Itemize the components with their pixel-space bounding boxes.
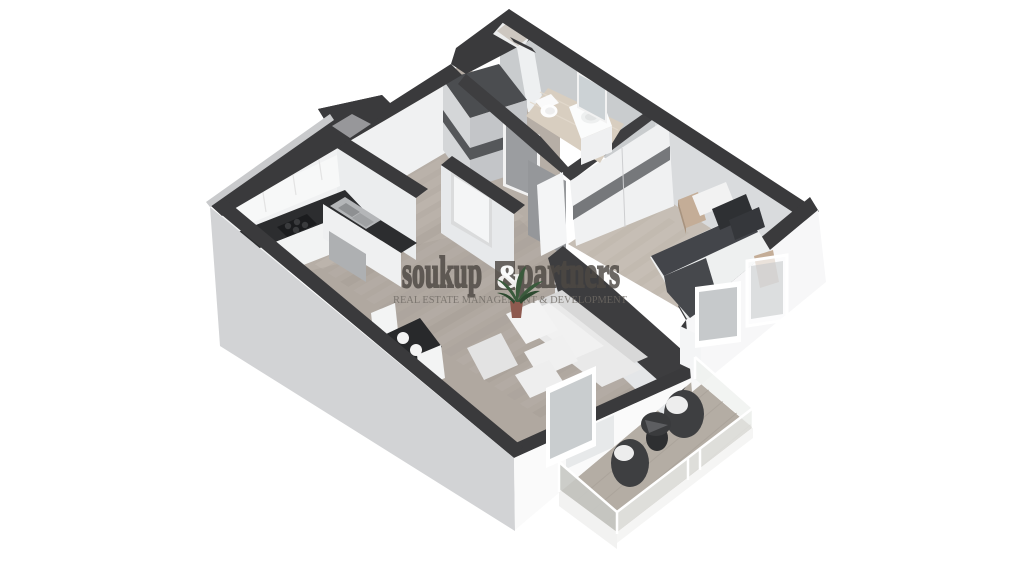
svg-text:REAL ESTATE MANAGEMENT & DEVEL: REAL ESTATE MANAGEMENT & DEVELOPMENT bbox=[393, 294, 627, 306]
svg-text:partners: partners bbox=[518, 248, 620, 297]
svg-text:soukup: soukup bbox=[402, 248, 482, 297]
